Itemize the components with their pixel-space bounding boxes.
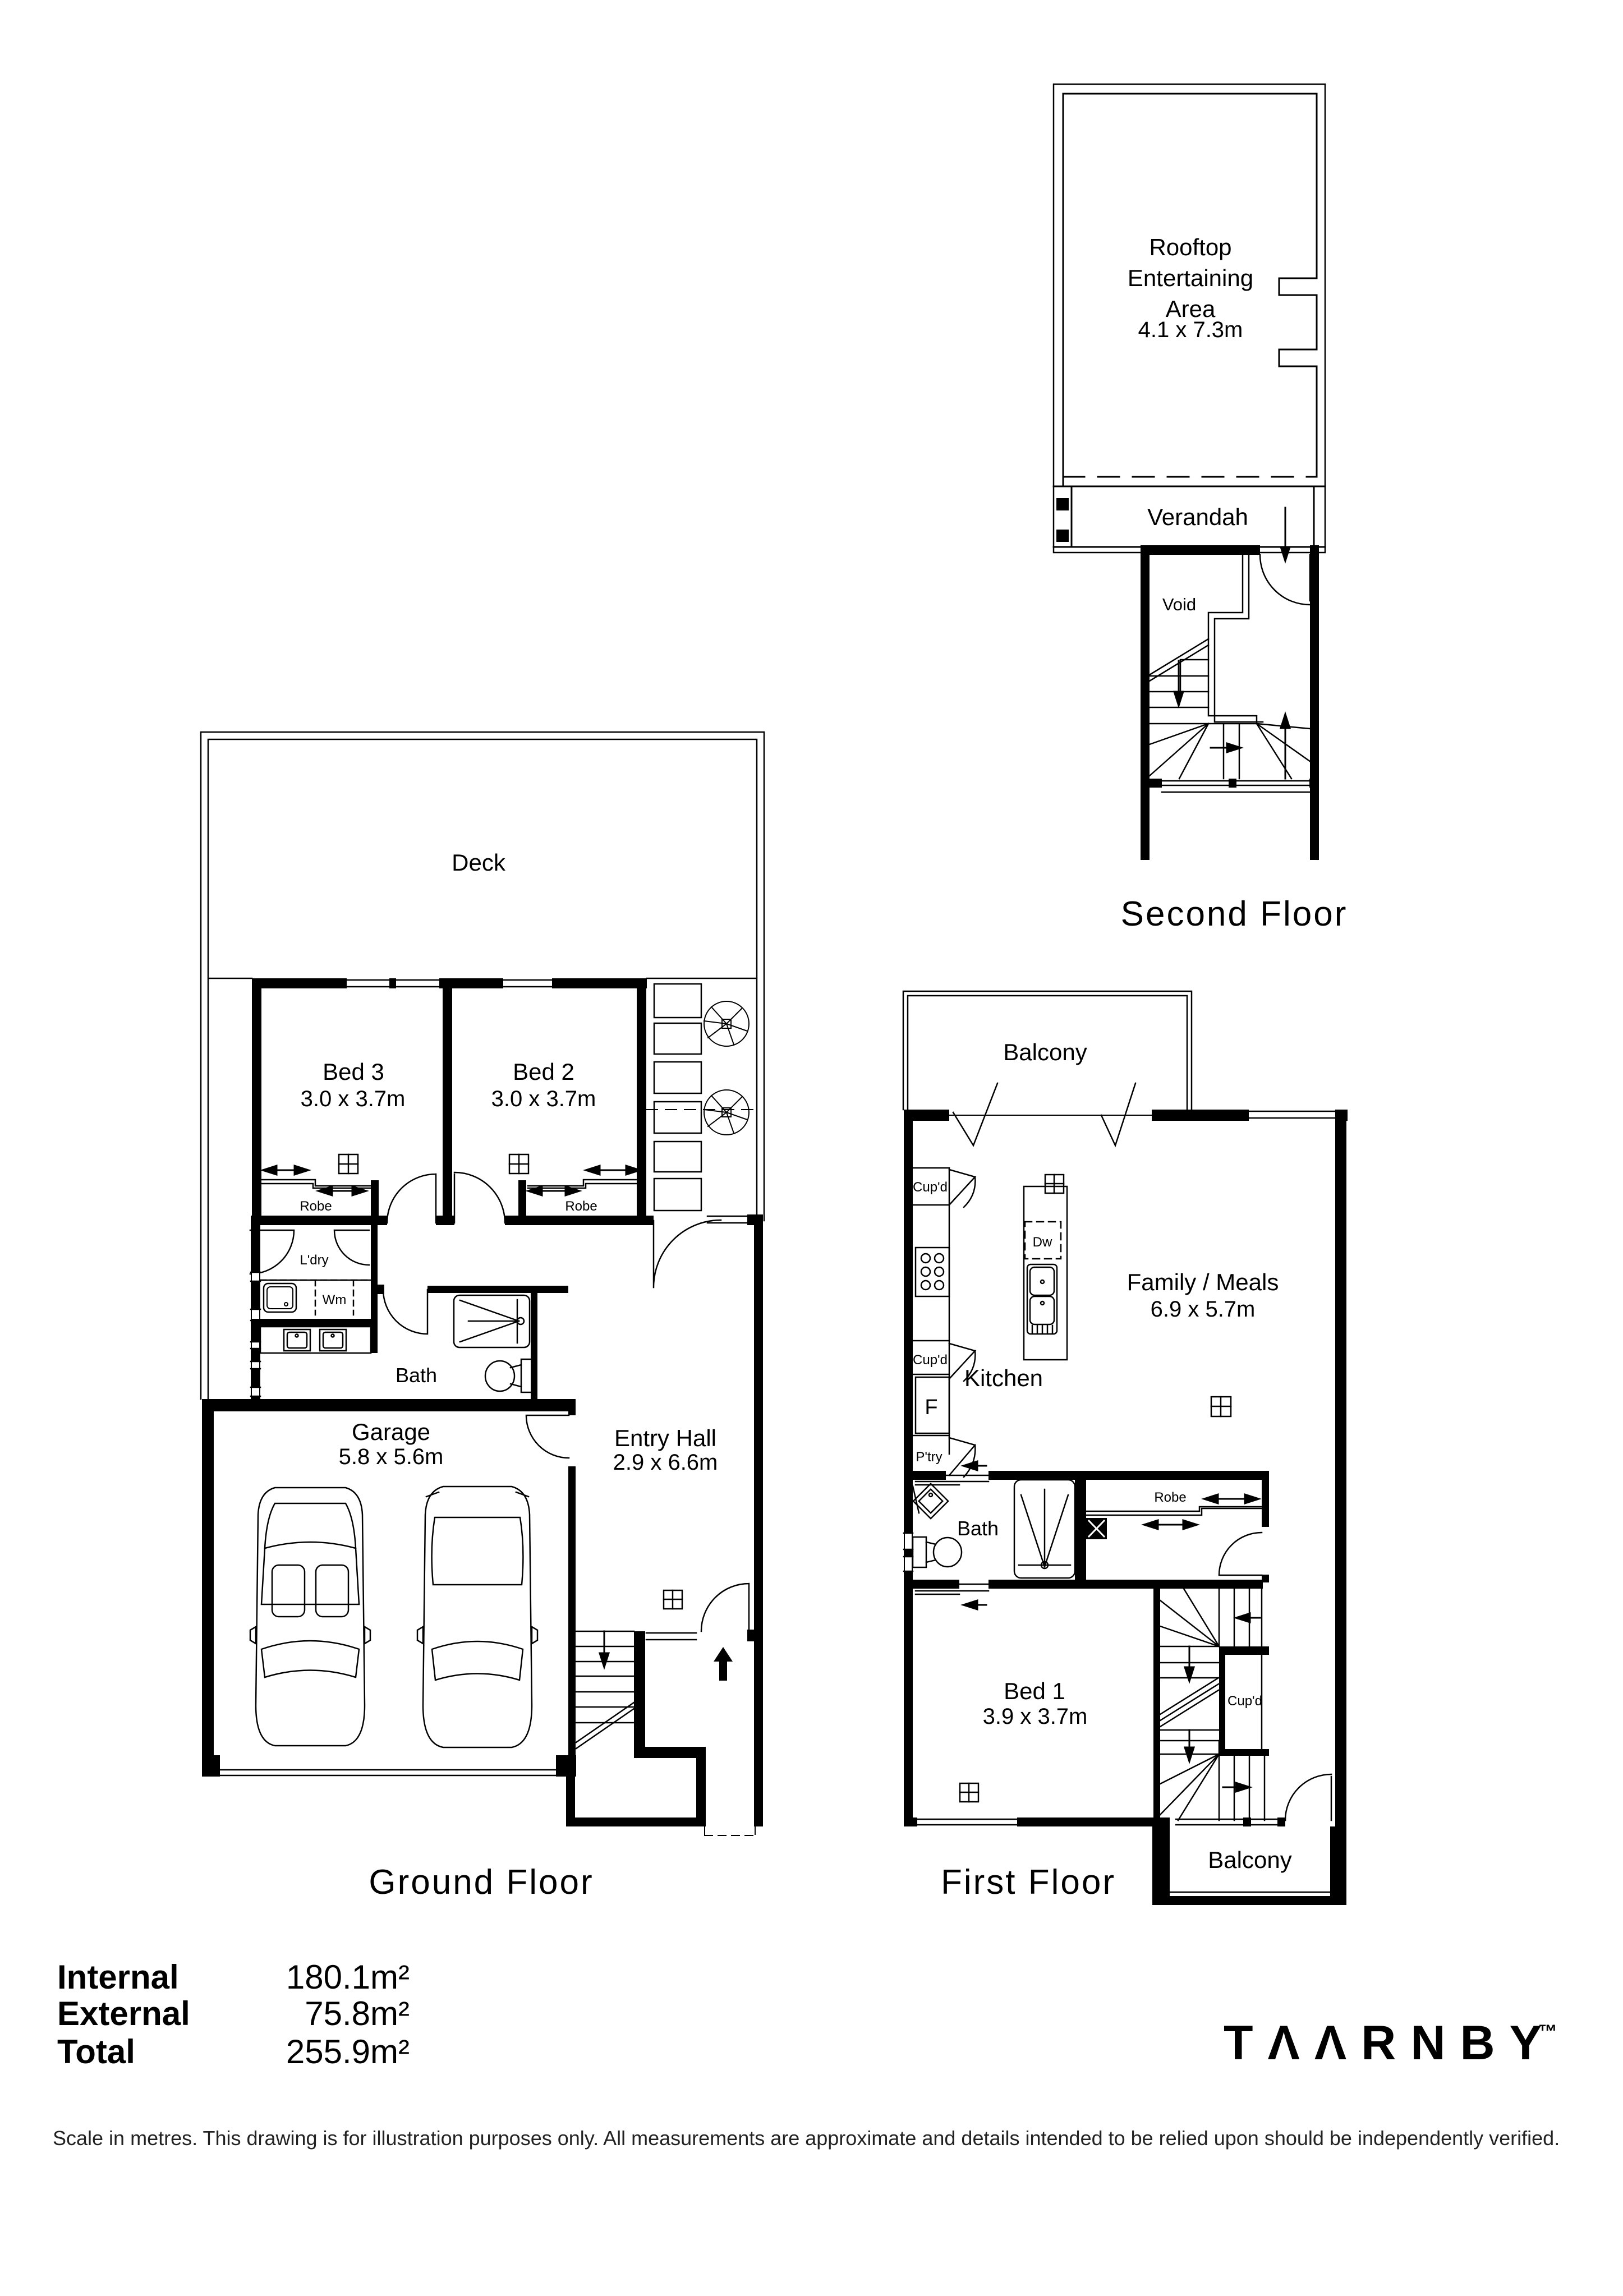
svg-text:Kitchen: Kitchen: [964, 1365, 1043, 1391]
svg-text:Rooftop: Rooftop: [1149, 234, 1231, 260]
svg-text:Bed 3: Bed 3: [323, 1059, 384, 1085]
svg-text:Family / Meals: Family / Meals: [1127, 1269, 1279, 1295]
svg-text:P'try: P'try: [916, 1450, 942, 1465]
svg-text:Balcony: Balcony: [1003, 1039, 1087, 1065]
svg-text:75.8m²: 75.8m²: [305, 1995, 410, 2032]
svg-text:Robe: Robe: [1154, 1490, 1186, 1505]
svg-text:TΛΛRNBY: TΛΛRNBY: [1224, 2016, 1556, 2070]
svg-text:4.1 x 7.3m: 4.1 x 7.3m: [1138, 318, 1243, 342]
svg-text:Garage: Garage: [352, 1419, 430, 1445]
svg-text:Robe: Robe: [300, 1199, 332, 1214]
svg-text:Total: Total: [57, 2033, 135, 2070]
svg-text:Cup'd: Cup'd: [1227, 1694, 1262, 1709]
svg-text:Bed 2: Bed 2: [513, 1059, 574, 1085]
svg-text:180.1m²: 180.1m²: [286, 1958, 410, 1996]
svg-text:Robe: Robe: [565, 1199, 597, 1214]
svg-text:3.0 x 3.7m: 3.0 x 3.7m: [301, 1087, 406, 1111]
svg-text:Cup'd: Cup'd: [913, 1352, 948, 1368]
svg-text:Verandah: Verandah: [1147, 504, 1248, 530]
svg-text:5.8 x 5.6m: 5.8 x 5.6m: [339, 1444, 444, 1469]
svg-text:External: External: [57, 1995, 190, 2032]
svg-text:Bath: Bath: [957, 1517, 999, 1540]
svg-text:Deck: Deck: [452, 849, 506, 876]
svg-text:Bath: Bath: [396, 1364, 437, 1387]
svg-text:Bed 1: Bed 1: [1004, 1678, 1065, 1704]
svg-text:Ground Floor: Ground Floor: [369, 1863, 594, 1902]
svg-text:Balcony: Balcony: [1208, 1847, 1291, 1873]
svg-text:Wm: Wm: [323, 1292, 347, 1308]
svg-text:First Floor: First Floor: [941, 1863, 1116, 1902]
svg-text:Void: Void: [1162, 595, 1196, 614]
svg-text:Scale in metres. This drawing: Scale in metres. This drawing is for ill…: [53, 2127, 1560, 2150]
svg-text:Second Floor: Second Floor: [1121, 895, 1348, 933]
svg-text:L'dry: L'dry: [300, 1253, 328, 1268]
svg-text:3.0 x 3.7m: 3.0 x 3.7m: [491, 1087, 596, 1111]
svg-text:™: ™: [1538, 2021, 1557, 2042]
svg-text:Dw: Dw: [1033, 1235, 1052, 1250]
svg-text:2.9 x 6.6m: 2.9 x 6.6m: [613, 1450, 718, 1475]
svg-text:Internal: Internal: [57, 1958, 179, 1996]
svg-text:F: F: [925, 1396, 937, 1419]
svg-text:Entry Hall: Entry Hall: [614, 1425, 716, 1451]
svg-text:Entertaining: Entertaining: [1128, 265, 1253, 291]
svg-text:3.9 x 3.7m: 3.9 x 3.7m: [983, 1704, 1088, 1729]
svg-text:Cup'd: Cup'd: [913, 1180, 948, 1195]
svg-text:6.9 x 5.7m: 6.9 x 5.7m: [1151, 1297, 1256, 1322]
svg-text:255.9m²: 255.9m²: [286, 2033, 410, 2070]
